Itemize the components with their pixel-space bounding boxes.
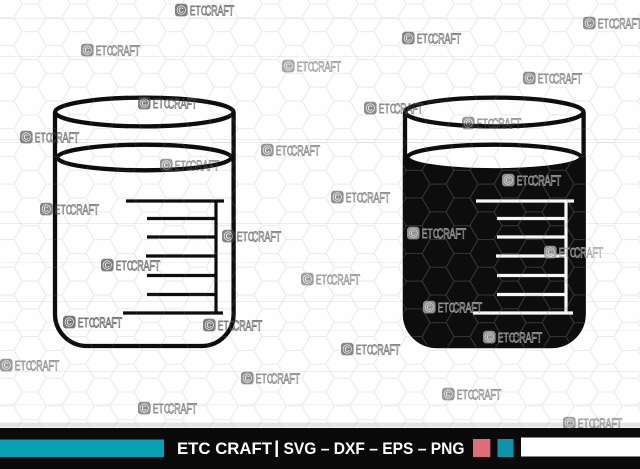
svg-text:SVG – DXF – EPS – PNG: SVG – DXF – EPS – PNG [284,439,465,458]
svg-text:ETC CRAFT: ETC CRAFT [177,439,273,458]
